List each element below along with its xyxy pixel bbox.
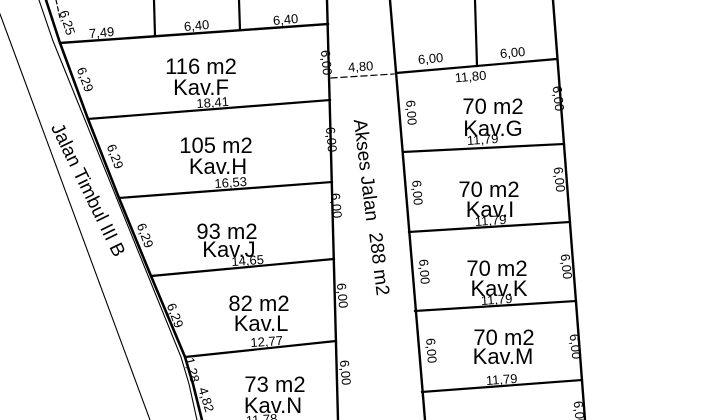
kavf-rear-dim: 6,00: [318, 49, 335, 76]
kavn-rear-dim: 6,00: [337, 359, 354, 386]
kavi-west-dim: 6,00: [409, 180, 426, 206]
kavn-bottom-dim: 11,78: [245, 411, 278, 420]
kavg-bottom-dim: 11,79: [466, 131, 499, 148]
top-left-divider-2: [239, 0, 240, 30]
partial-plot-east-dim: 6,00: [571, 400, 589, 420]
kavl-bottom-dim: 12,77: [250, 333, 284, 350]
kavi-bottom-dim: 11,79: [474, 212, 507, 229]
kavf-bottom-dim: 18,41: [196, 94, 230, 111]
kavg-top-dim: 11,80: [454, 68, 487, 86]
top-dim-600b: 6,00: [499, 44, 526, 61]
kavi-east-dim: 6,00: [551, 166, 569, 193]
kavm-east-dim: 6,00: [567, 333, 585, 360]
top-dim-640b: 6,40: [272, 11, 299, 28]
kavh-rear-dim: 6,00: [323, 126, 340, 153]
top-dim-640a: 6,40: [183, 17, 210, 34]
kavj-rear-dim: 6,00: [328, 192, 345, 219]
plot-partial-bottom-right: 6,00: [571, 400, 589, 420]
site-plan-page: Jalan Timbul III B 4,80 Akses Jalan 288 …: [0, 0, 719, 420]
kavg-west-dim: 6,00: [403, 100, 420, 126]
kavl-rear-dim: 6,00: [334, 282, 351, 309]
kavk-west-dim: 6,00: [416, 259, 433, 285]
kavk-bottom-dim: 11,79: [480, 291, 513, 308]
kavg-east-dim: 6,00: [550, 85, 568, 112]
kavk-east-dim: 6,00: [558, 253, 576, 280]
site-plan-drawing: Jalan Timbul III B 4,80 Akses Jalan 288 …: [0, 0, 719, 420]
kavm-west-dim: 6,00: [423, 338, 440, 364]
kavj-bottom-dim: 14,65: [231, 252, 265, 269]
kavh-bottom-dim: 16,53: [214, 174, 248, 191]
top-dim-749: 7,49: [88, 24, 115, 41]
top-left-divider-1: [154, 0, 155, 36]
akses-width-dim: 4,80: [348, 58, 374, 75]
top-dim-600a: 6,00: [417, 50, 444, 67]
kavm-name-label: Kav.M: [473, 344, 534, 369]
kavm-bottom-dim: 11,79: [485, 371, 518, 388]
